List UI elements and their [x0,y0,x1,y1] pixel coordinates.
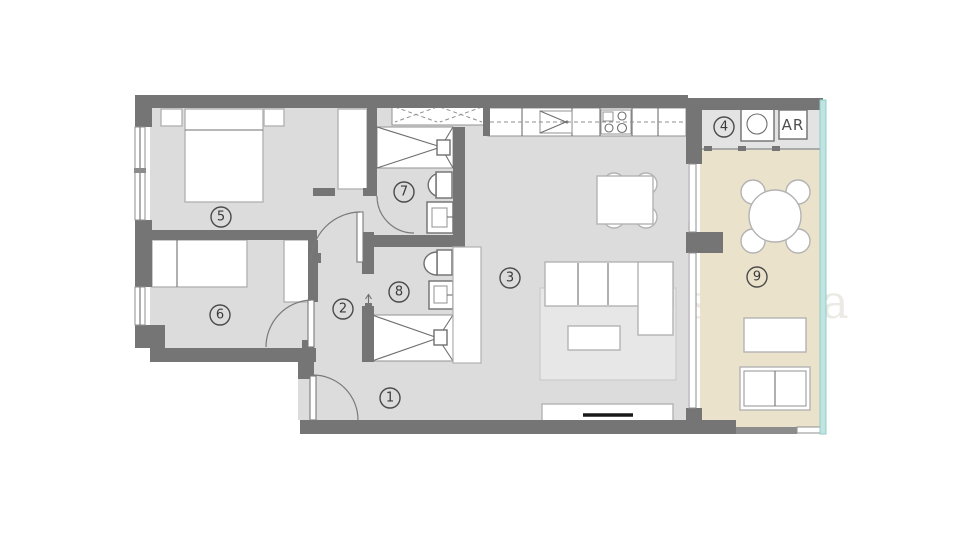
outdoor-table [744,318,806,352]
floor-plan-drawing: Mon Rêve España [0,0,973,536]
glass-door [689,253,696,408]
glass-balustrade [820,100,826,434]
double-bed [185,109,263,202]
wall-bottom [300,420,702,434]
wall-top [137,95,688,108]
glass-door [689,164,696,232]
tv-cabinet [542,404,673,422]
bathroom1-fixtures [427,172,453,233]
sofa-chaise [638,262,673,335]
svg-text:8: 8 [395,285,403,300]
exterior-cutout [130,362,298,442]
cabinet [284,240,312,302]
svg-text:4: 4 [720,120,728,135]
svg-text:9: 9 [753,270,761,285]
dining-set [597,173,657,228]
svg-text:5: 5 [217,210,225,225]
nightstand [264,109,284,126]
single-bed [152,240,247,287]
svg-text:7: 7 [400,185,408,200]
dining-table [597,176,653,224]
shower-bath1 [377,127,453,168]
shaft-wall [453,247,481,363]
floor-plan-page: Mon Rêve España [0,0,973,536]
svg-text:2: 2 [339,302,347,317]
coffee-table [568,326,620,350]
svg-text:6: 6 [216,308,224,323]
svg-text:3: 3 [506,271,514,286]
wall-step [150,348,316,362]
wall-bathrooms [368,235,455,247]
terrace-low-wall [797,427,822,433]
wall-top-right [688,98,823,110]
kitchen-counter [488,108,686,136]
wall-bedrooms [150,230,317,240]
wardrobe [338,109,367,189]
terrace-wall-stub [686,232,723,253]
toilet-tank [437,250,452,275]
ar-label: AR [782,116,805,134]
round-table [749,190,801,242]
svg-text:1: 1 [386,391,394,406]
toilet-tank [436,172,452,198]
nightstand [161,109,182,126]
